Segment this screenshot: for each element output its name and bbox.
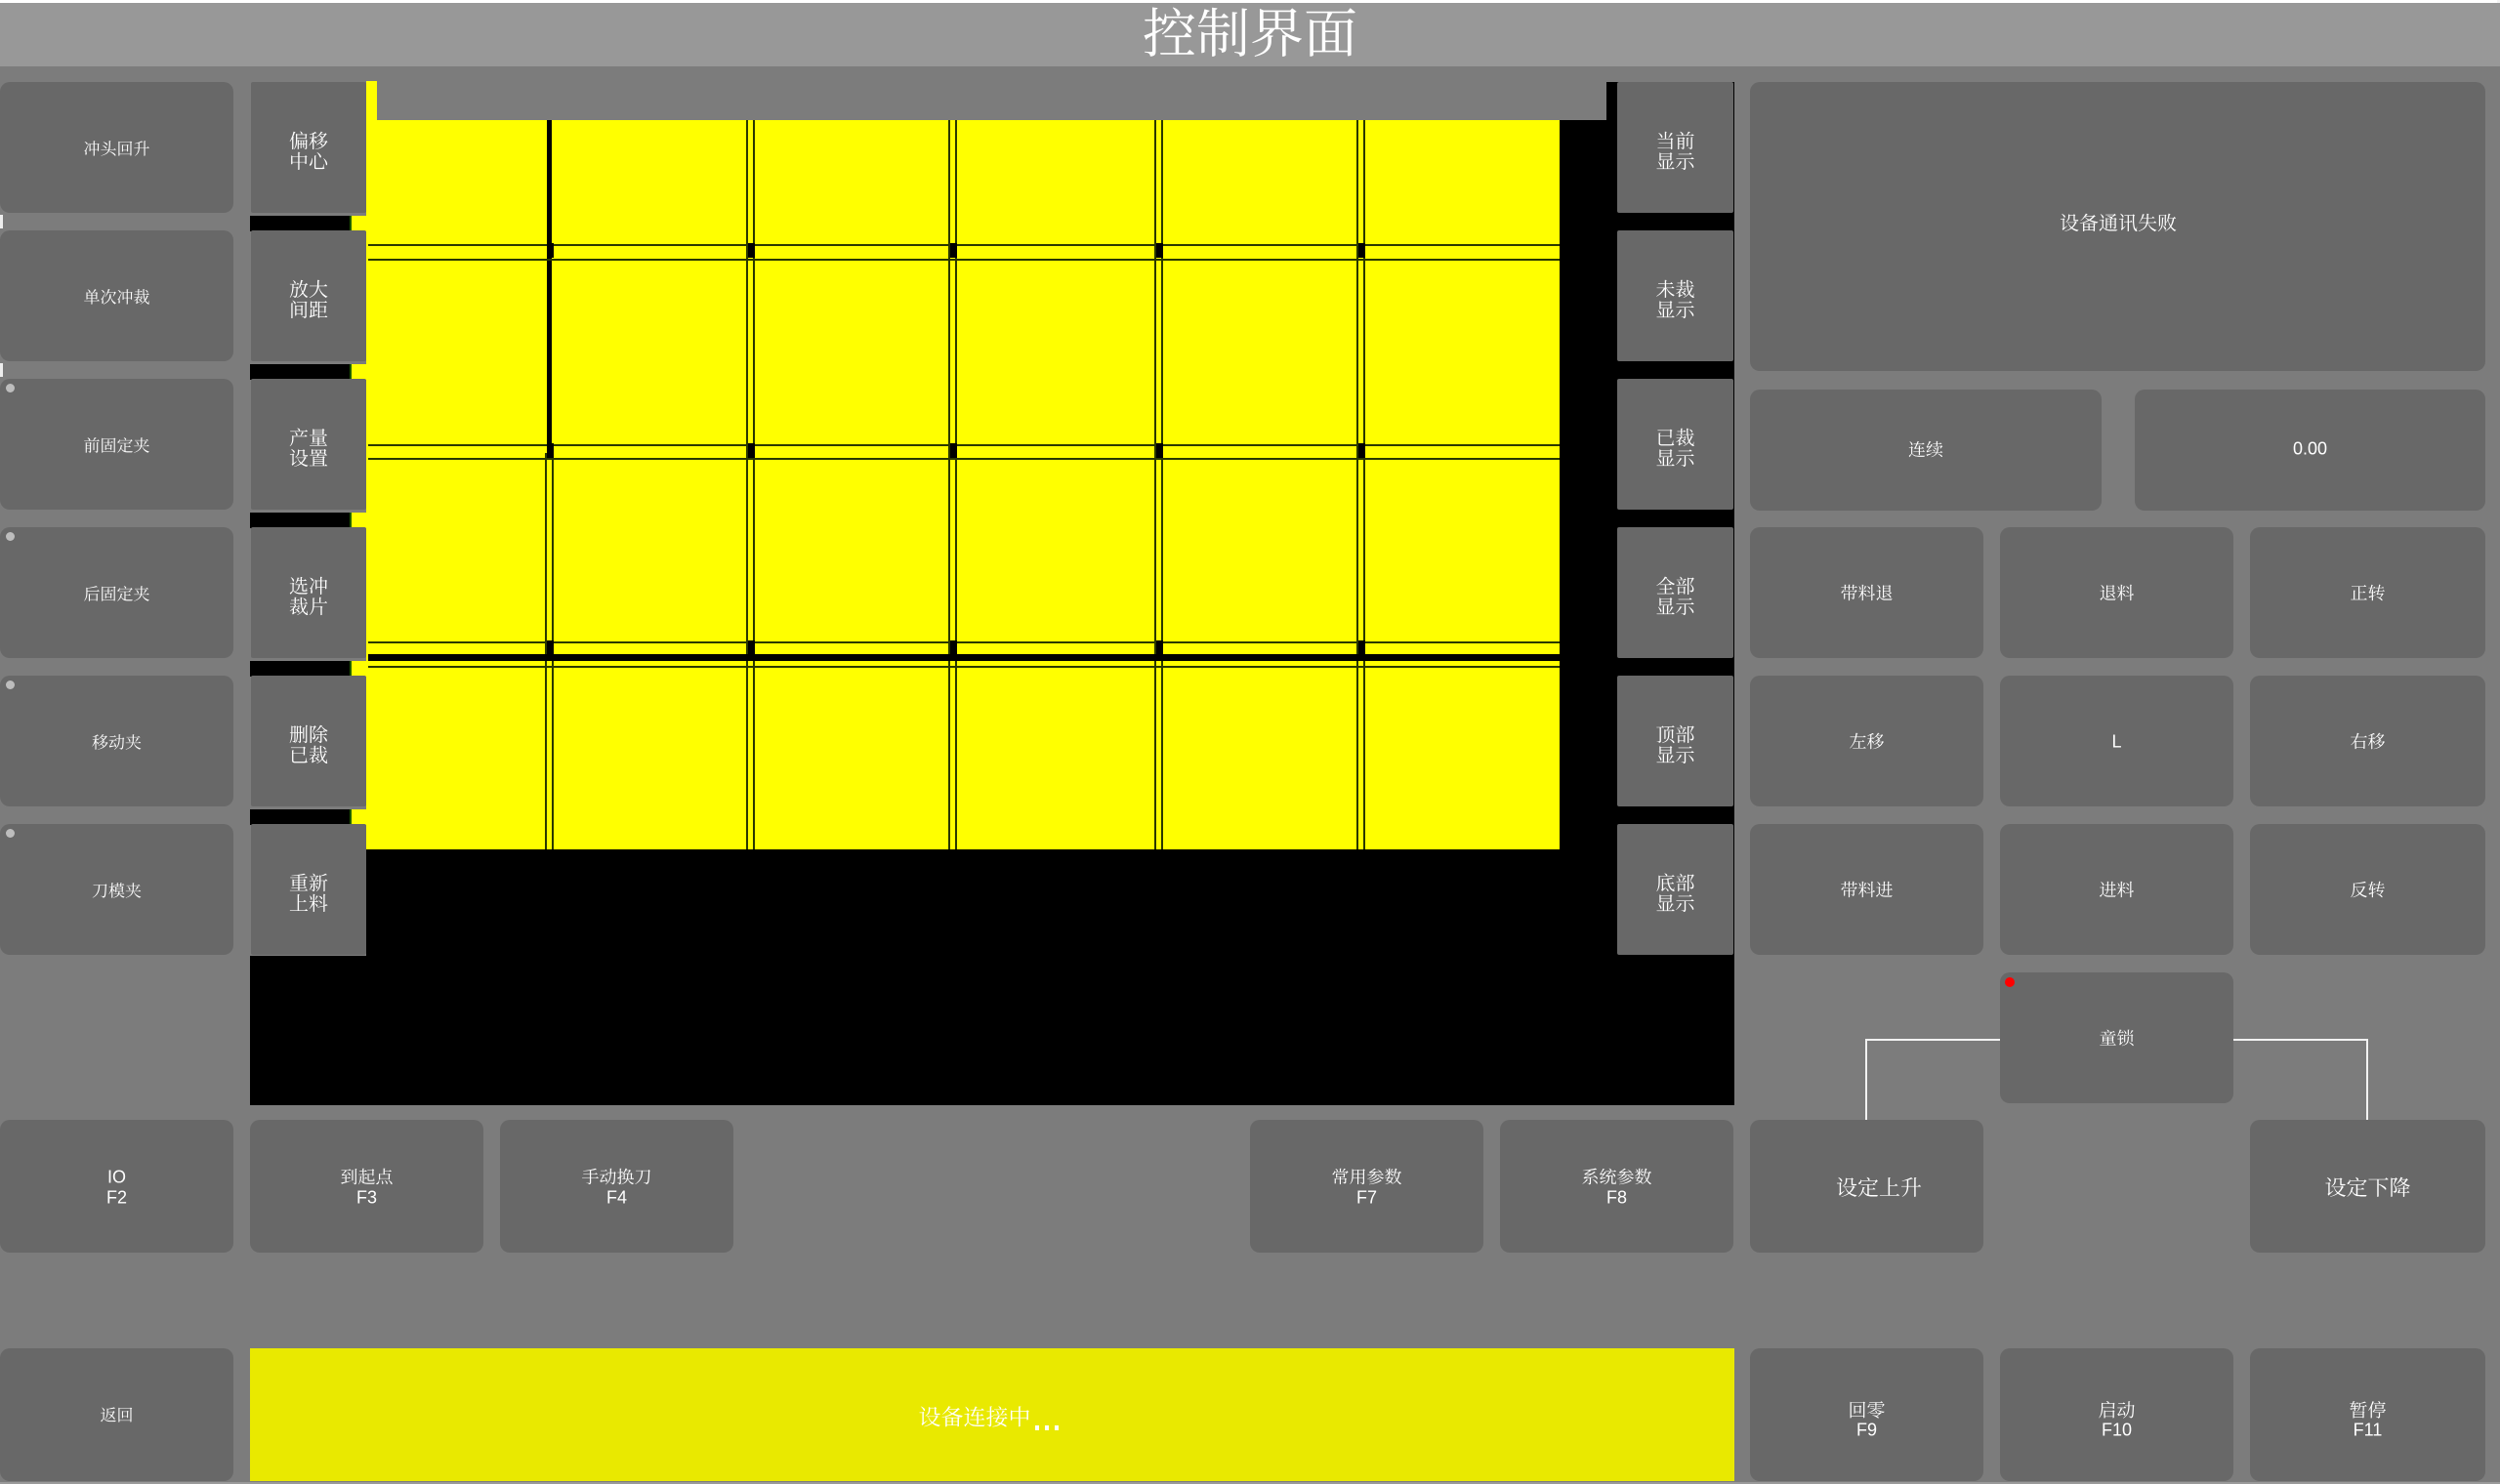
svg-text:F7: F7: [1356, 1188, 1377, 1208]
svg-text:F10: F10: [2102, 1421, 2132, 1440]
svg-text:IO: IO: [107, 1168, 126, 1187]
svg-text:F8: F8: [1606, 1188, 1627, 1208]
svg-text:F3: F3: [356, 1188, 377, 1208]
svg-text:F9: F9: [1856, 1421, 1877, 1440]
svg-text:0.00: 0.00: [2293, 439, 2327, 459]
svg-text:L: L: [2111, 732, 2121, 752]
svg-text:F2: F2: [106, 1188, 127, 1208]
svg-text:F4: F4: [606, 1188, 627, 1208]
svg-text:F11: F11: [2354, 1421, 2383, 1440]
